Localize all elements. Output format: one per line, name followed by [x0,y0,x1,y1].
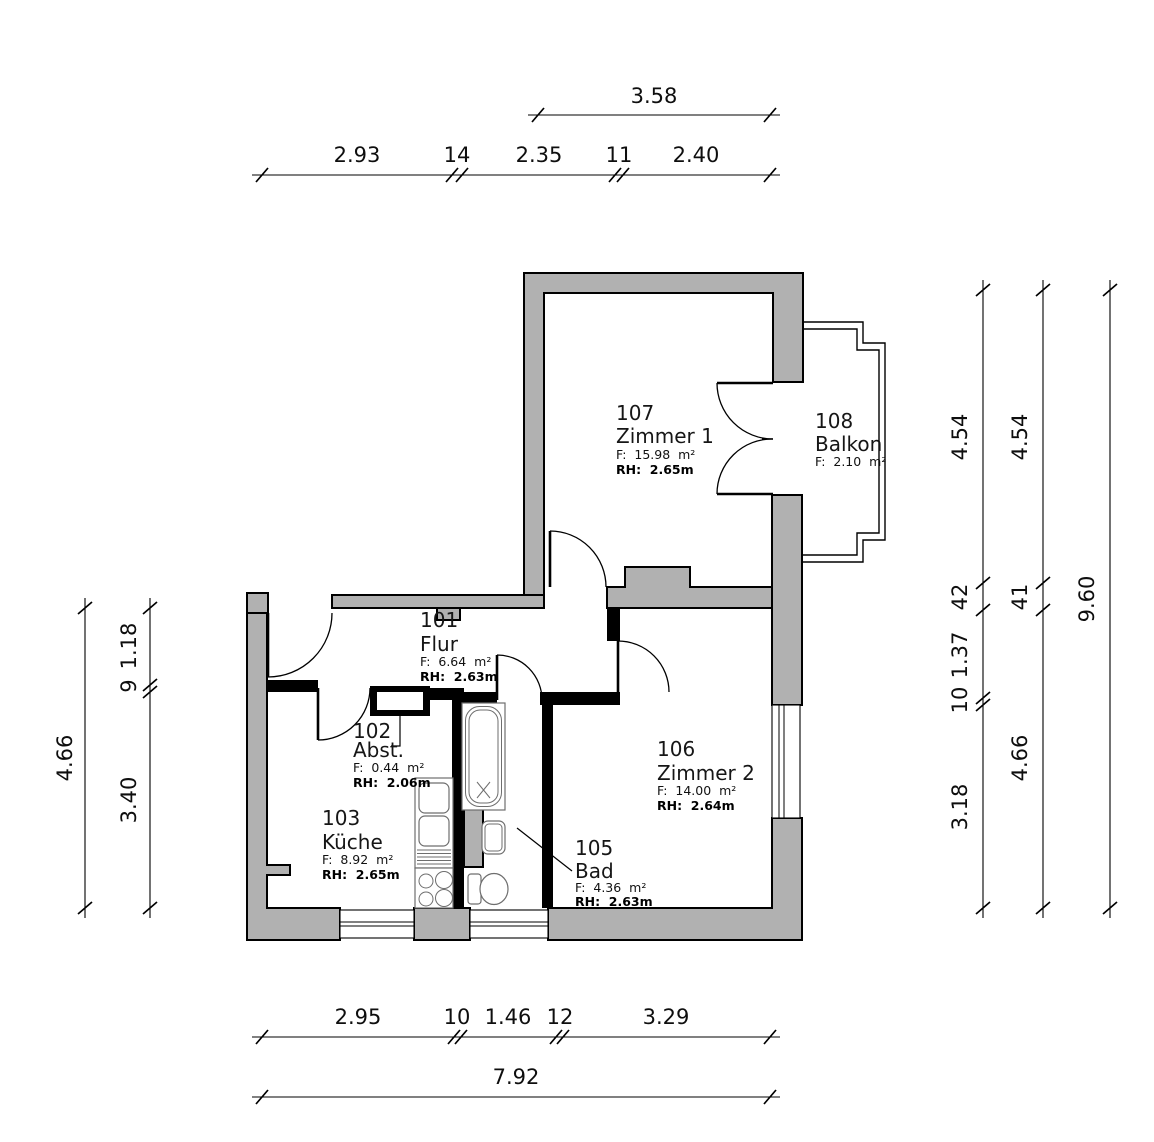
zimmer2-door [618,641,669,692]
wall-bottom-mid-pier [414,908,470,940]
dimension-left-total: 4.66 [53,598,92,918]
dim-label: 41 [1008,584,1032,611]
dimension-right-total: 9.60 [1075,280,1117,918]
wall-zimmer2-stub [607,608,620,641]
dim-label: 2.95 [335,1005,382,1029]
window-bad [470,910,548,938]
dim-label: 3.29 [643,1005,690,1029]
dim-label: 14 [444,143,471,167]
dim-label: 42 [948,584,972,611]
room-name: Balkon [815,432,882,456]
bathtub [462,703,505,810]
dimension-left-chain: 1.18 9 3.40 [117,598,157,918]
room-area: F: 14.00 m² [657,783,736,798]
room-area: F: 6.64 m² [420,654,491,669]
dimension-right-inner: 4.54 42 1.37 10 3.18 [948,280,990,918]
washbasin [482,821,505,854]
dim-label: 9 [117,679,141,692]
wall-bad-zimmer2 [542,692,553,908]
dim-label: 1.18 [117,623,141,670]
room-height: RH: 2.64m [657,798,735,813]
dim-label: 3.40 [117,777,141,824]
room-area: F: 15.98 m² [616,447,695,462]
room-name: Küche [322,830,383,854]
dimension-top-chain: 2.93 14 2.35 11 2.40 [252,143,780,182]
dimension-bottom-chain: 2.95 10 1.46 12 3.29 [252,1005,780,1044]
room-area: F: 4.36 m² [575,880,646,895]
room-number: 108 [815,409,853,433]
room-label-zimmer1: 107 Zimmer 1 F: 15.98 m² RH: 2.65m [616,401,714,477]
dim-label: 1.37 [948,632,972,679]
room-height: RH: 2.06m [353,775,431,790]
room-name: Zimmer 1 [616,424,714,448]
room-area: F: 2.10 m² [815,454,886,469]
dimension-right-mid: 4.54 41 4.66 [1008,280,1050,918]
dimension-top-total: 3.58 [528,84,780,122]
room-height: RH: 2.63m [420,669,498,684]
abst-closet-interior [377,692,423,710]
dim-label: 2.35 [516,143,563,167]
balcony-french-door [717,383,773,494]
entry-door [268,613,332,677]
dim-label: 10 [948,687,972,714]
room-area: F: 0.44 m² [353,760,424,775]
dim-label: 9.60 [1075,576,1099,623]
dim-label: 3.58 [631,84,678,108]
dim-label: 3.18 [948,784,972,831]
toilet [468,874,508,905]
room-name: Zimmer 2 [657,761,755,785]
zimmer1-door [550,531,606,587]
dim-label: 12 [547,1005,574,1029]
dim-label: 2.40 [673,143,720,167]
room-number: 105 [575,836,613,860]
dim-label: 11 [606,143,633,167]
dimension-bottom-total: 7.92 [252,1065,780,1104]
room-label-abst: 102 Abst. F: 0.44 m² RH: 2.06m [353,719,431,790]
dim-label: 4.66 [1008,735,1032,782]
room-area: F: 8.92 m² [322,852,393,867]
dim-label: 10 [444,1005,471,1029]
room-height: RH: 2.63m [575,894,653,909]
room-label-zimmer2: 106 Zimmer 2 F: 14.00 m² RH: 2.64m [657,737,755,813]
room-name: Flur [420,632,459,656]
dim-label: 2.93 [334,143,381,167]
kitchen-counter [415,778,453,868]
dim-label: 7.92 [493,1065,540,1089]
window-zimmer2 [772,705,800,818]
dim-label: 4.54 [1008,414,1032,461]
dim-label: 4.54 [948,414,972,461]
wall-zimmer1-zimmer2 [607,567,772,608]
room-number: 106 [657,737,695,761]
room-number: 103 [322,806,360,830]
room-label-kueche: 103 Küche F: 8.92 m² RH: 2.65m [322,806,400,882]
room-label-balkon: 108 Balkon F: 2.10 m² [815,409,886,469]
room-name: Abst. [353,738,404,762]
window-kueche [340,910,414,938]
bad-door [497,655,542,700]
stove [415,868,453,908]
wall-flur-kueche [267,680,318,692]
wall-right-mid [772,495,802,705]
wall-closet-stub [423,688,452,700]
wall-bad-niche [464,808,483,867]
wall-flur-top [332,595,544,608]
room-number: 107 [616,401,654,425]
dim-label: 4.66 [53,735,77,782]
windows [340,705,800,938]
floor-plan-canvas: 107 Zimmer 1 F: 15.98 m² RH: 2.65m 108 B… [0,0,1154,1142]
room-label-bad: 105 Bad F: 4.36 m² RH: 2.63m [575,836,653,909]
room-height: RH: 2.65m [616,462,694,477]
room-number: 101 [420,608,458,632]
room-height: RH: 2.65m [322,867,400,882]
kitchen-sink [419,816,449,846]
wall-entry-block [247,593,268,613]
wall-left-and-bottom-left [247,613,340,940]
dim-label: 1.46 [485,1005,532,1029]
